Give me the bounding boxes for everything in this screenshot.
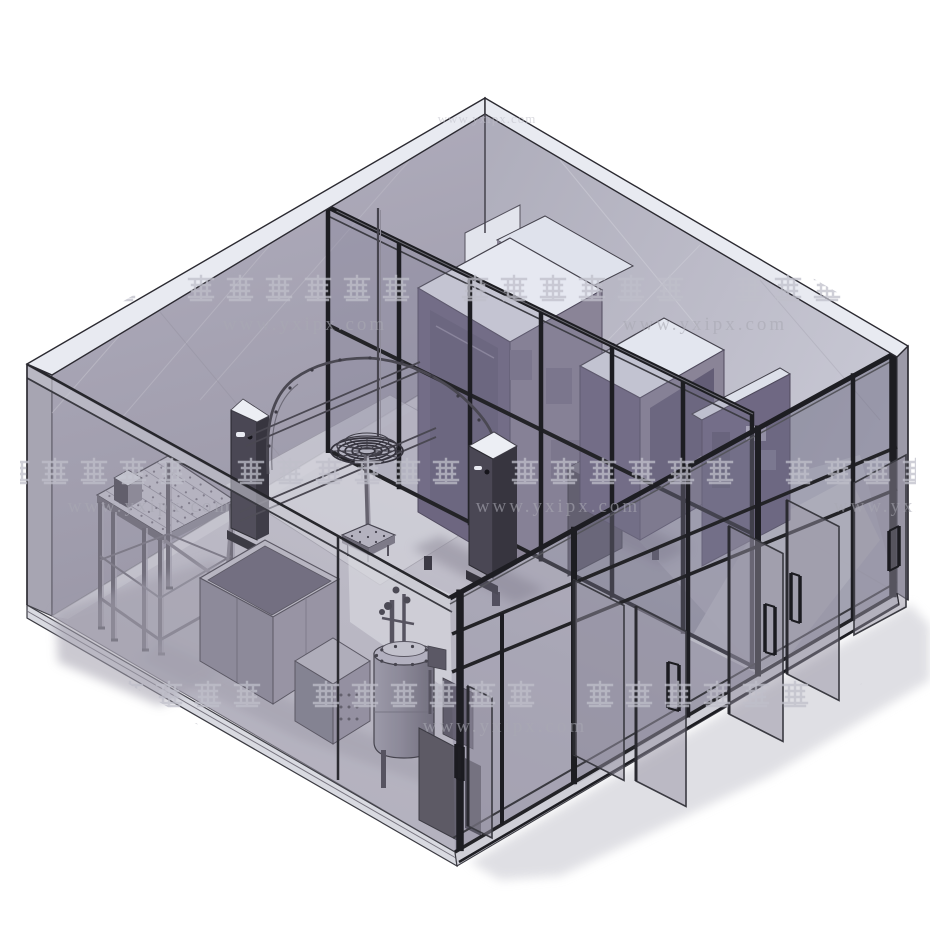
svg-text:www.yxipx.com: www.yxipx.com: [68, 496, 232, 517]
svg-text:www.yxipx.com: www.yxipx.com: [223, 314, 387, 335]
svg-text:www.yxipx.com: www.yxipx.com: [623, 314, 787, 335]
svg-text:www.yxipx.com: www.yxipx.com: [438, 111, 537, 126]
svg-text:www.yxipx.com: www.yxipx.com: [476, 496, 640, 517]
svg-text:www.yxipx.com: www.yxipx.com: [834, 496, 930, 517]
svg-text:www.yxipx.com: www.yxipx.com: [423, 716, 587, 737]
